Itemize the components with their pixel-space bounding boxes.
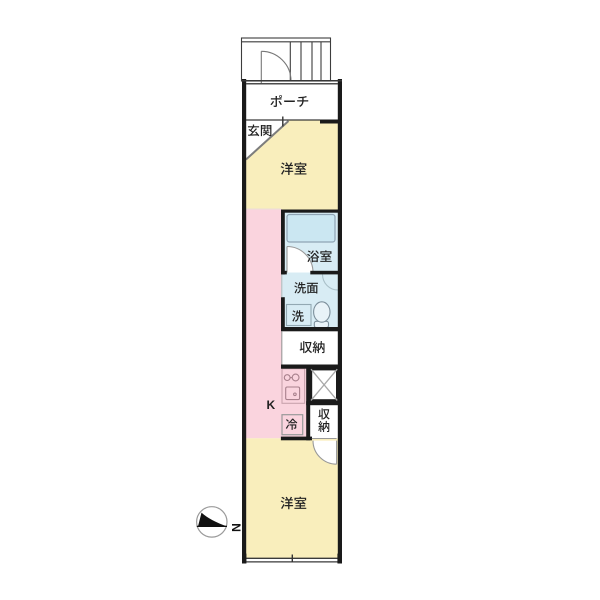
svg-text:K: K bbox=[266, 398, 275, 412]
svg-text:N: N bbox=[229, 523, 243, 532]
